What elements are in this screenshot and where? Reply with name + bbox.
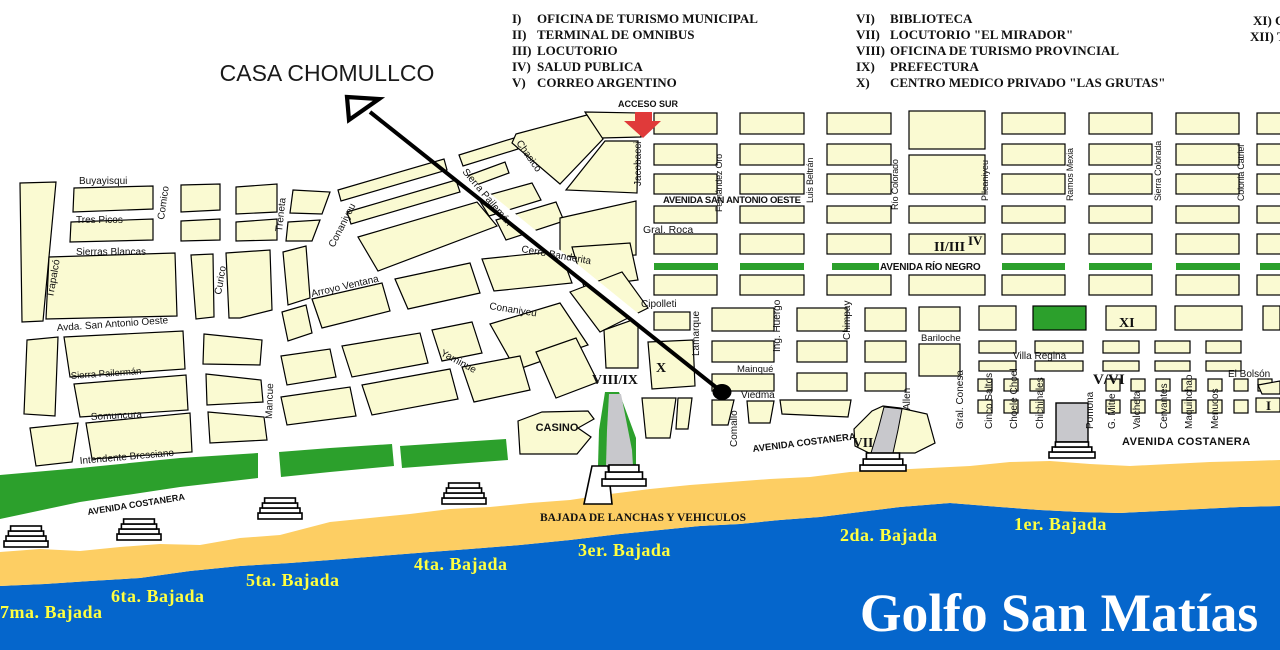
svg-text:CENTRO MEDICO PRIVADO "LAS GRU: CENTRO MEDICO PRIVADO "LAS GRUTAS"	[890, 75, 1165, 90]
svg-text:Comallo: Comallo	[729, 410, 740, 447]
svg-text:Cipolleti: Cipolleti	[641, 299, 677, 310]
svg-text:6ta. Bajada: 6ta. Bajada	[111, 586, 205, 606]
svg-text:V/VI: V/VI	[1093, 372, 1125, 388]
svg-text:Choele Choel: Choele Choel	[1009, 368, 1020, 429]
svg-text:XII) T: XII) T	[1250, 29, 1280, 44]
svg-text:7ma. Bajada: 7ma. Bajada	[0, 602, 103, 622]
svg-text:Valcheta: Valcheta	[1132, 390, 1143, 429]
svg-text:Mainqué: Mainqué	[737, 364, 773, 375]
svg-text:Maquinchao: Maquinchao	[1184, 374, 1195, 429]
svg-text:OFICINA DE TURISMO MUNICIPAL: OFICINA DE TURISMO MUNICIPAL	[537, 11, 758, 26]
svg-text:ACCESO SUR: ACCESO SUR	[618, 99, 679, 109]
svg-text:Jacobacci: Jacobacci	[633, 142, 644, 186]
svg-text:AVENIDA SAN ANTONIO OESTE: AVENIDA SAN ANTONIO OESTE	[663, 195, 801, 206]
svg-text:Allen: Allen	[902, 388, 913, 410]
svg-text:CASA CHOMULLCO: CASA CHOMULLCO	[220, 60, 435, 86]
svg-text:Gral. Roca: Gral. Roca	[643, 224, 693, 236]
svg-text:BAJADA DE LANCHAS Y VEHICULOS: BAJADA DE LANCHAS Y VEHICULOS	[540, 512, 746, 524]
svg-text:IV): IV)	[512, 59, 531, 74]
svg-text:Cinco Saltos: Cinco Saltos	[984, 373, 995, 429]
svg-text:PREFECTURA: PREFECTURA	[890, 59, 979, 74]
svg-text:VIII): VIII)	[856, 43, 885, 58]
svg-text:BIBLIOTECA: BIBLIOTECA	[890, 11, 973, 26]
svg-text:AVENIDA RÍO NEGRO: AVENIDA RÍO NEGRO	[880, 260, 981, 273]
svg-text:TERMINAL DE OMNIBUS: TERMINAL DE OMNIBUS	[537, 27, 694, 42]
svg-text:5ta. Bajada: 5ta. Bajada	[246, 570, 340, 590]
svg-text:Menucos: Menucos	[1210, 388, 1221, 429]
svg-text:CORREO ARGENTINO: CORREO ARGENTINO	[537, 75, 677, 90]
svg-text:Mancue: Mancue	[264, 383, 276, 419]
svg-text:Villa Regina: Villa Regina	[1013, 351, 1067, 362]
svg-text:Pomona: Pomona	[1085, 391, 1096, 429]
svg-text:VII: VII	[853, 435, 873, 450]
svg-text:Luis Beltrán: Luis Beltrán	[805, 158, 815, 203]
svg-text:SALUD PUBLICA: SALUD PUBLICA	[537, 59, 643, 74]
svg-text:Chimpay: Chimpay	[842, 301, 853, 340]
svg-text:VIII/IX: VIII/IX	[592, 373, 638, 388]
svg-text:III): III)	[512, 43, 532, 58]
svg-text:G. Mitre: G. Mitre	[1107, 393, 1118, 429]
svg-text:VI): VI)	[856, 11, 875, 26]
svg-text:XI) C: XI) C	[1253, 13, 1280, 28]
svg-text:II/III: II/III	[934, 240, 965, 255]
svg-text:Tres Picos: Tres Picos	[76, 215, 123, 226]
svg-text:I: I	[1266, 398, 1271, 413]
svg-text:1er. Bajada: 1er. Bajada	[1014, 514, 1107, 534]
svg-text:Chichinales: Chichinales	[1035, 377, 1046, 429]
svg-text:Viedma: Viedma	[741, 390, 775, 401]
svg-text:Pilcaniyeu: Pilcaniyeu	[980, 160, 990, 201]
svg-text:Lamarque: Lamarque	[691, 311, 702, 356]
svg-text:Gral. Conesa: Gral. Conesa	[955, 370, 966, 429]
svg-text:LOCUTORIO: LOCUTORIO	[537, 43, 618, 58]
svg-text:3er. Bajada: 3er. Bajada	[578, 540, 671, 560]
svg-text:OFICINA DE TURISMO PROVINCIAL: OFICINA DE TURISMO PROVINCIAL	[890, 43, 1119, 58]
svg-text:El Bolsón: El Bolsón	[1228, 369, 1270, 380]
svg-text:XI: XI	[1119, 316, 1135, 331]
svg-text:Colonia Catriel: Colonia Catriel	[1236, 145, 1246, 201]
svg-text:CASINO: CASINO	[536, 422, 579, 434]
svg-text:Ramos Mexia: Ramos Mexia	[1065, 148, 1075, 201]
svg-text:X: X	[656, 361, 666, 376]
svg-text:4ta. Bajada: 4ta. Bajada	[414, 554, 508, 574]
svg-text:Ing. Huergo: Ing. Huergo	[772, 299, 783, 352]
svg-text:AVENIDA COSTANERA: AVENIDA COSTANERA	[1122, 436, 1251, 448]
svg-text:I): I)	[512, 11, 521, 26]
svg-text:LOCUTORIO "EL MIRADOR": LOCUTORIO "EL MIRADOR"	[890, 27, 1073, 42]
svg-text:V): V)	[512, 75, 526, 90]
svg-text:Cervantes: Cervantes	[1159, 383, 1170, 429]
svg-text:Sierra Colorada: Sierra Colorada	[1153, 141, 1163, 201]
svg-text:Golfo San Matías: Golfo San Matías	[860, 583, 1258, 643]
svg-text:Sierras Blancas: Sierras Blancas	[76, 247, 146, 258]
svg-text:Buyayisqui: Buyayisqui	[79, 176, 127, 187]
svg-text:II): II)	[512, 27, 526, 42]
svg-text:VII): VII)	[856, 27, 880, 42]
svg-text:Río Colorado: Río Colorado	[890, 159, 900, 210]
svg-text:IX): IX)	[856, 59, 875, 74]
svg-text:X): X)	[856, 75, 870, 90]
svg-text:Bariloche: Bariloche	[921, 333, 961, 344]
svg-text:2da. Bajada: 2da. Bajada	[840, 525, 938, 545]
svg-text:IV: IV	[968, 233, 983, 248]
